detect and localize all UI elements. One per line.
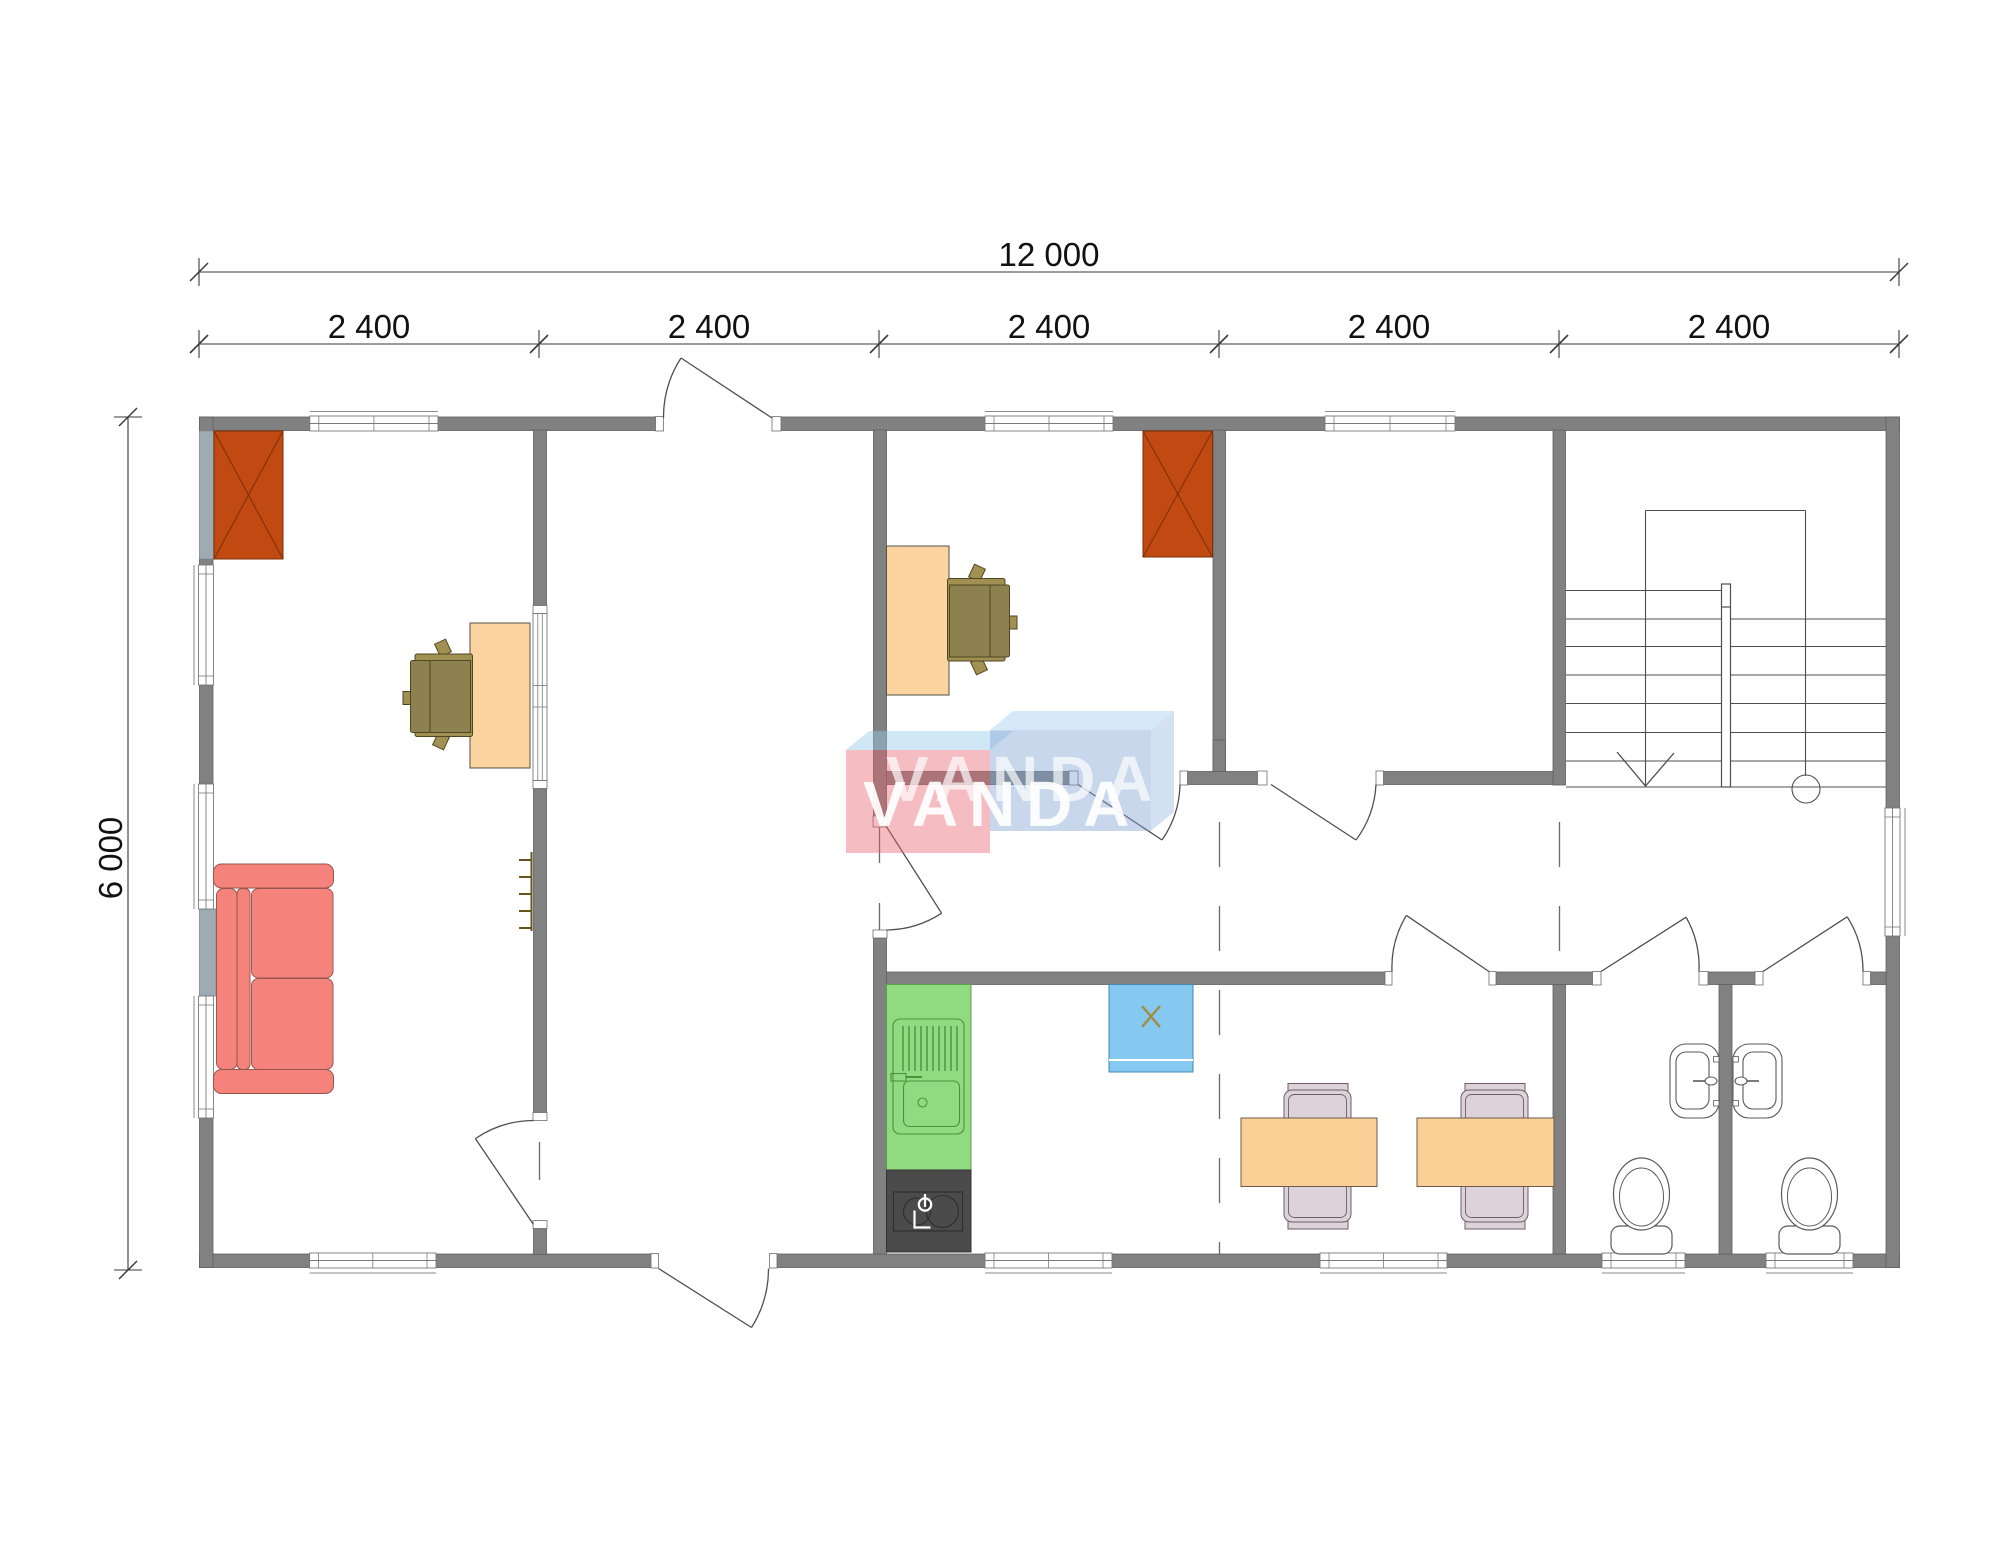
svg-text:2 400: 2 400 xyxy=(1008,308,1091,345)
svg-text:12 000: 12 000 xyxy=(999,236,1100,273)
svg-text:6 000: 6 000 xyxy=(92,817,129,900)
svg-text:2 400: 2 400 xyxy=(328,308,411,345)
svg-text:2 400: 2 400 xyxy=(1688,308,1771,345)
svg-text:VANDA: VANDA xyxy=(863,768,1140,840)
svg-text:2 400: 2 400 xyxy=(1348,308,1431,345)
svg-text:2 400: 2 400 xyxy=(668,308,751,345)
